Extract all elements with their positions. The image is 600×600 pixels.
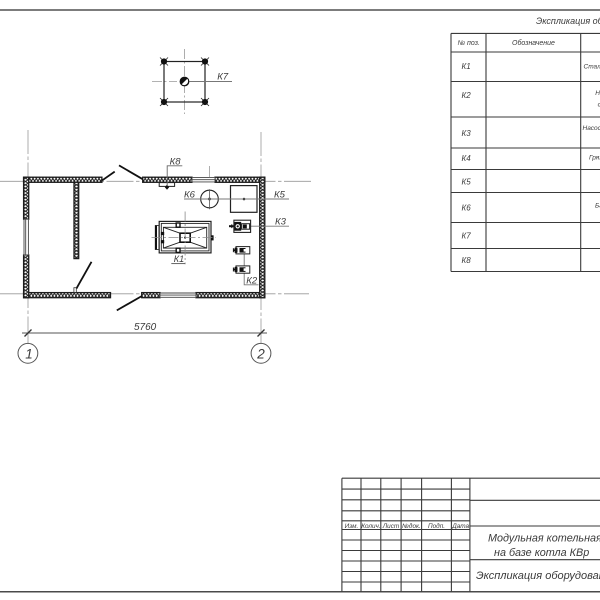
svg-text:К6: К6 <box>184 190 196 201</box>
svg-text:К5: К5 <box>462 178 472 187</box>
svg-text:Грязевик: Грязевик <box>589 155 600 162</box>
svg-text:Стальной котел: Стальной котел <box>584 63 600 71</box>
svg-text:на базе котла КВр: на базе котла КВр <box>494 547 589 559</box>
svg-text:Изм.: Изм. <box>345 523 359 530</box>
svg-text:К2: К2 <box>462 91 472 100</box>
svg-text:К1: К1 <box>462 62 471 71</box>
svg-text:№док.: №док. <box>402 522 421 530</box>
svg-text:Насос подпиточный: Насос подпиточный <box>583 124 600 132</box>
svg-text:Экспликация оборудования: Экспликация оборудования <box>476 570 600 582</box>
svg-text:К5: К5 <box>274 190 286 201</box>
svg-text:К1: К1 <box>174 254 184 264</box>
svg-text:К4: К4 <box>462 154 472 163</box>
svg-text:К2: К2 <box>246 275 258 286</box>
svg-text:Подп.: Подп. <box>428 522 445 530</box>
svg-text:№ поз.: № поз. <box>458 40 480 47</box>
svg-text:К3: К3 <box>462 129 472 138</box>
svg-text:К7: К7 <box>217 72 229 83</box>
svg-text:Дата: Дата <box>451 523 469 530</box>
svg-text:К8: К8 <box>462 256 472 265</box>
svg-text:Экспликация оборудования: Экспликация оборудования <box>536 16 600 26</box>
svg-text:1: 1 <box>25 346 33 361</box>
svg-text:5760: 5760 <box>134 322 157 333</box>
svg-text:Модульная котельная: Модульная котельная <box>488 533 600 545</box>
svg-text:К8: К8 <box>170 156 182 167</box>
svg-text:Насос: Насос <box>595 90 600 97</box>
svg-text:Обозначение: Обозначение <box>512 39 555 47</box>
svg-text:К7: К7 <box>462 232 472 241</box>
svg-text:Колич.: Колич. <box>361 523 380 530</box>
svg-text:К3: К3 <box>275 217 287 228</box>
svg-text:2: 2 <box>256 346 265 361</box>
svg-text:Лист: Лист <box>382 523 400 530</box>
svg-text:Бак: Бак <box>595 203 600 210</box>
svg-text:К6: К6 <box>462 204 472 213</box>
